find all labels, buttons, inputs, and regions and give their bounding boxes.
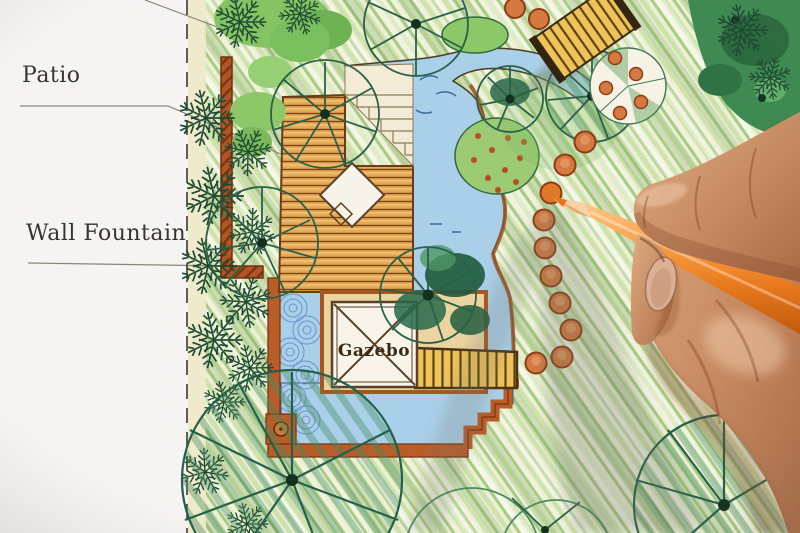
garden-plan-drawing: Patio Wall Fountain Gazebo xyxy=(0,0,800,533)
photo-of-landscape-plan: Patio Wall Fountain Gazebo xyxy=(0,0,800,533)
photo-vignette xyxy=(0,0,800,533)
